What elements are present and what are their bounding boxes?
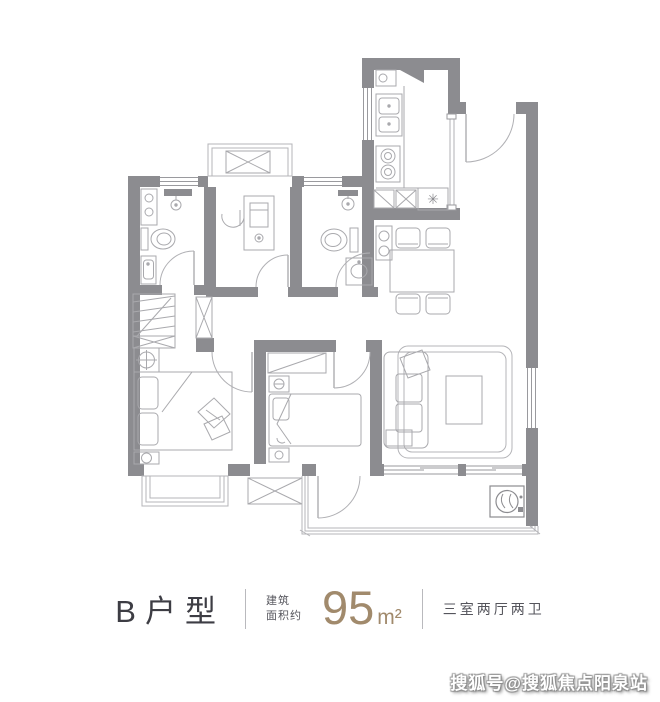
living-side-window-icon — [525, 368, 539, 428]
kitchen: ✳ — [374, 70, 448, 210]
legend: B户型 建筑 面积约 95 m² 三室两厅两卫 — [0, 586, 660, 631]
double-bed-icon — [134, 372, 232, 450]
master-bedroom — [133, 294, 232, 464]
master-bay-window-icon — [142, 476, 228, 506]
floor-drain-icon: ✳ — [418, 188, 448, 210]
stove-icon — [376, 146, 400, 182]
shower-icon — [338, 190, 358, 210]
cutting-board-icon — [374, 190, 394, 208]
bathroom-1 — [141, 189, 192, 284]
balcony-sliding-window-icon — [384, 463, 458, 477]
chair-icon — [396, 294, 420, 314]
study-room — [222, 196, 274, 250]
living-room — [384, 346, 512, 458]
toilet-icon — [321, 228, 358, 252]
bath2-window-icon — [304, 175, 342, 188]
walls — [128, 58, 538, 526]
single-bed-icon — [269, 394, 361, 446]
nightstand-icon — [269, 448, 289, 462]
sofa-icon — [384, 350, 430, 448]
coffee-table-icon — [446, 376, 482, 424]
nightstand-icon — [269, 376, 289, 392]
ac-platform-icon — [248, 478, 302, 504]
duct-shaft-icon — [196, 297, 212, 338]
svg-text:✳: ✳ — [427, 191, 439, 207]
dining-table-icon — [390, 250, 454, 292]
area-label-line1: 建筑 — [266, 596, 302, 607]
counter-corner-icon — [400, 70, 424, 83]
chair-icon — [426, 294, 450, 314]
bedroom2-door-icon — [334, 352, 370, 388]
chair-icon — [426, 228, 450, 248]
bath1-window-icon — [160, 175, 198, 188]
entry-door-icon — [466, 114, 514, 162]
shower-icon — [164, 189, 192, 210]
doors — [160, 114, 514, 518]
unit-name: B户型 — [115, 586, 225, 631]
laundry-sliding-window-icon — [466, 463, 522, 477]
rooms-summary: 三室两厅两卫 — [443, 599, 545, 619]
bedroom-2 — [268, 353, 361, 462]
desk-icon — [244, 196, 274, 250]
area-number: 95 — [322, 587, 374, 629]
area-label-line2: 面积约 — [266, 611, 302, 622]
watermark: 搜狐号@搜狐焦点阳泉站 — [450, 669, 648, 694]
dining-area — [390, 228, 454, 314]
balcony-door-icon — [318, 476, 360, 518]
sink-vanity-icon — [141, 256, 156, 284]
study-bay-window-icon — [208, 144, 292, 176]
chair-icon — [396, 228, 420, 248]
bath1-door-icon — [160, 251, 194, 285]
bathroom-2 — [321, 190, 392, 285]
washing-machine-icon — [490, 486, 524, 517]
floor-plan: ✳ — [0, 0, 660, 575]
kitchen-window-icon — [361, 88, 375, 140]
floor-plan-drawing: ✳ — [0, 0, 660, 575]
legend-divider — [422, 589, 423, 629]
wardrobe-icon — [268, 353, 326, 373]
washbasin-icon — [141, 189, 157, 225]
area-value: 95 m² — [322, 587, 402, 629]
fridge-icon — [396, 190, 416, 208]
chair-icon — [222, 210, 244, 227]
legend-divider — [245, 589, 246, 629]
area-unit: m² — [377, 609, 402, 630]
study-door-icon — [256, 255, 288, 287]
toilet-icon — [141, 228, 175, 250]
area-label: 建筑 面积约 — [266, 596, 302, 622]
kitchen-sink-icon — [376, 94, 402, 136]
floor-plan-page: { "legend": { "unit_name": "B户型", "area_… — [0, 0, 660, 702]
